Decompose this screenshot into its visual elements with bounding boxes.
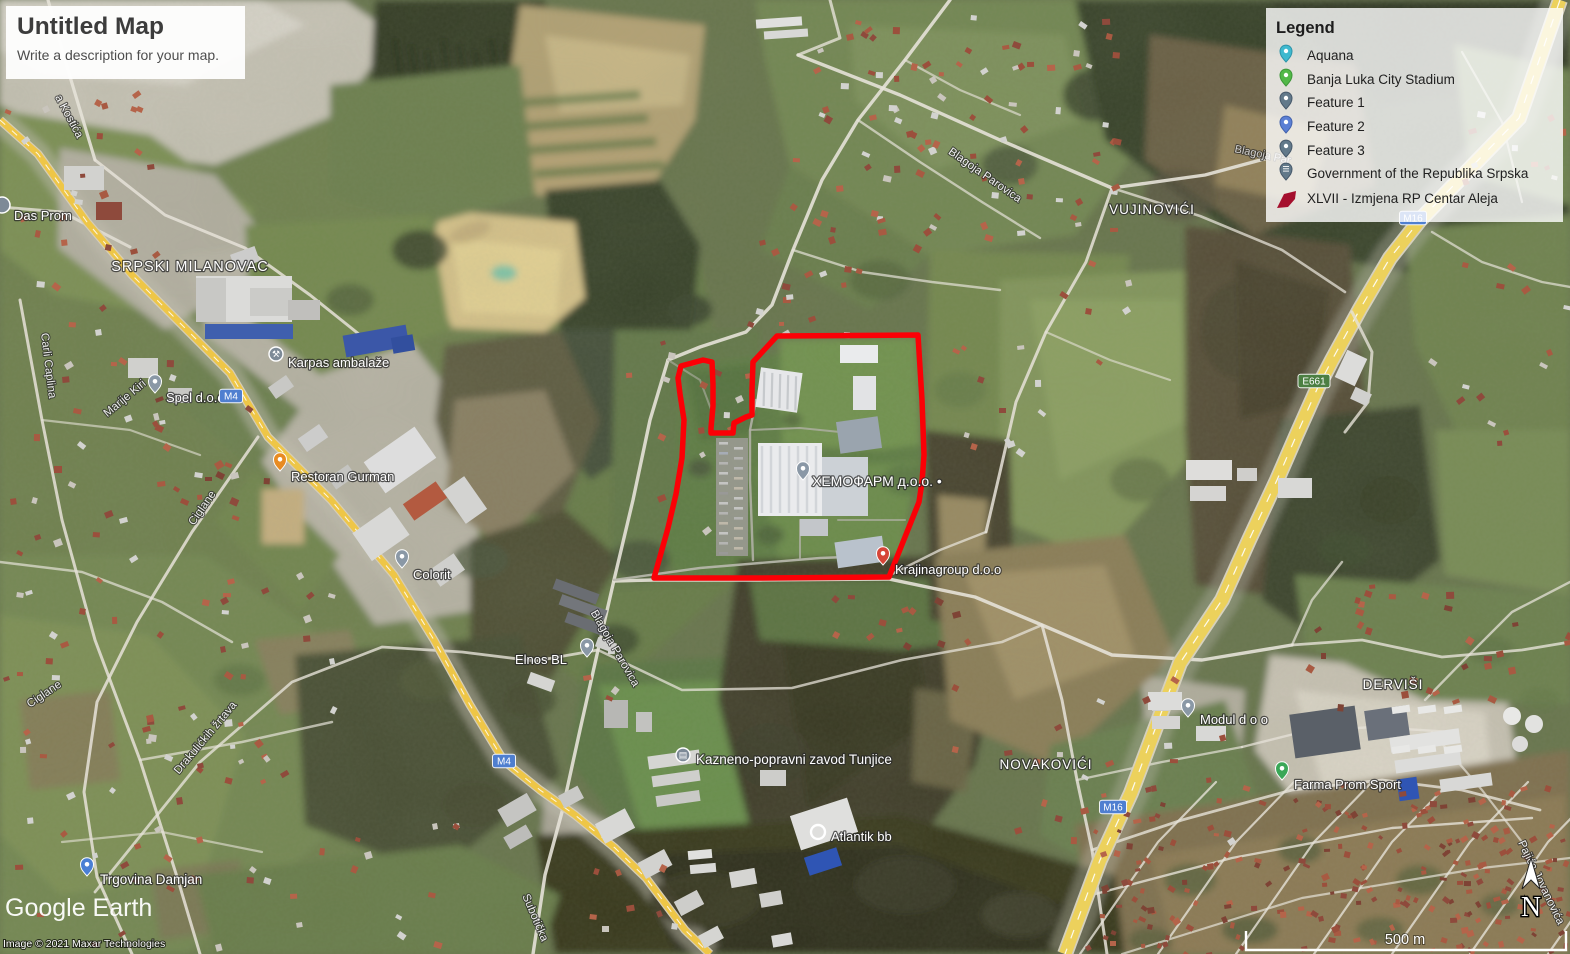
svg-text:Banja Luka City Stadium: Banja Luka City Stadium bbox=[1307, 72, 1455, 87]
svg-text:Government of the Republika Sr: Government of the Republika Srpska bbox=[1307, 166, 1529, 181]
svg-text:XLVII - Izmjena RP Centar Alej: XLVII - Izmjena RP Centar Aleja bbox=[1307, 191, 1498, 206]
svg-text:Feature 2: Feature 2 bbox=[1307, 119, 1365, 134]
svg-text:Feature 1: Feature 1 bbox=[1307, 95, 1365, 110]
svg-text:Feature 3: Feature 3 bbox=[1307, 143, 1365, 158]
svg-text:Aquana: Aquana bbox=[1307, 48, 1354, 63]
svg-text:Legend: Legend bbox=[1276, 19, 1335, 37]
